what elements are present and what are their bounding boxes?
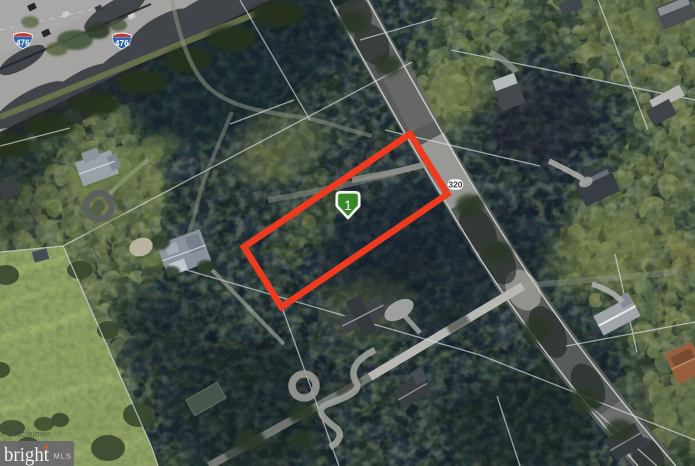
svg-text:MLS: MLS [54,452,72,461]
svg-text:476: 476 [115,39,129,48]
svg-text:1: 1 [344,198,352,213]
svg-text:320: 320 [448,180,463,190]
svg-text:ce Disclaimer: ce Disclaimer [0,429,50,439]
svg-text:bright: bright [4,444,49,466]
svg-text:476: 476 [16,38,30,47]
